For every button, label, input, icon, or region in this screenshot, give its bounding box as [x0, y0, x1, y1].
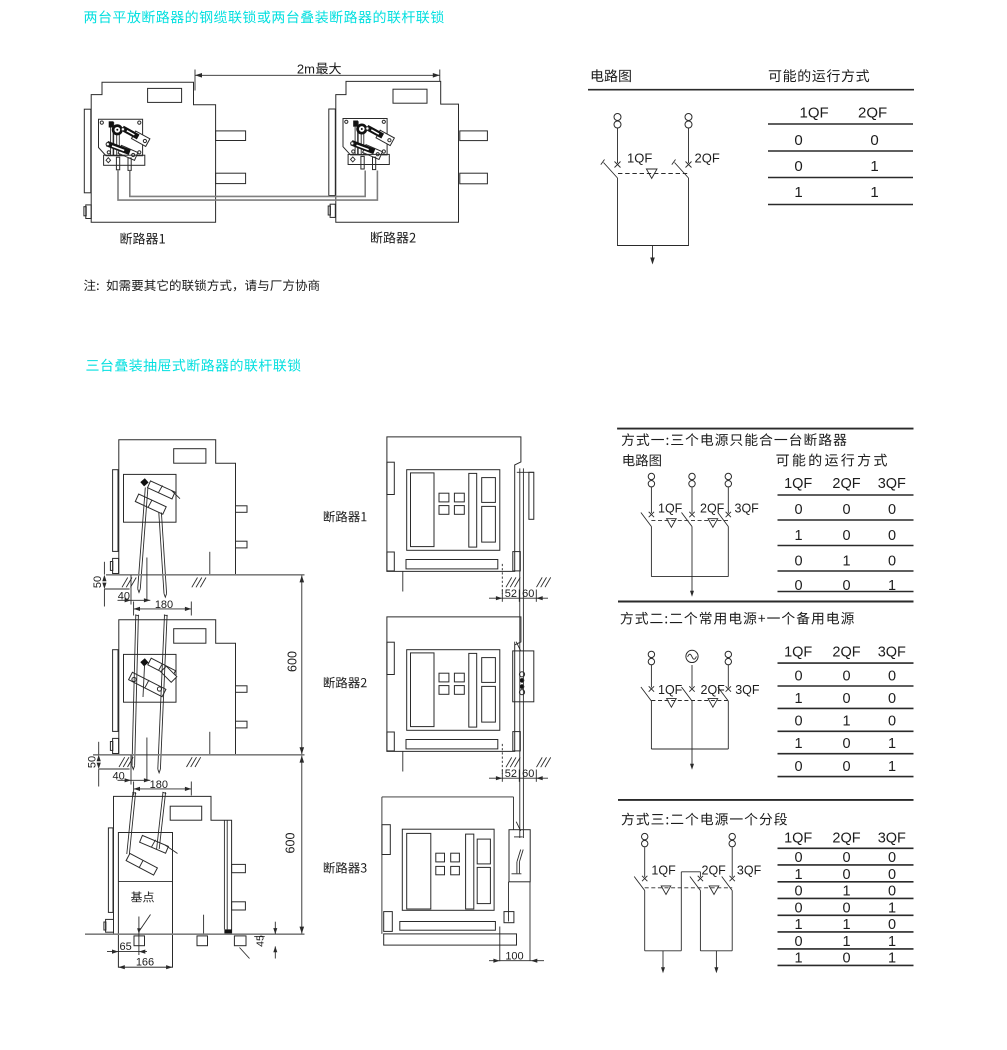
svg-text:0: 0: [794, 554, 802, 570]
svg-text:0: 0: [870, 132, 878, 149]
svg-text:3QF: 3QF: [737, 864, 762, 878]
svg-text:0: 0: [794, 759, 802, 775]
svg-text:1: 1: [842, 884, 850, 900]
svg-text:1: 1: [794, 736, 802, 752]
svg-text:3QF: 3QF: [878, 476, 906, 492]
svg-text:166: 166: [136, 957, 154, 969]
svg-text:1: 1: [842, 554, 850, 570]
svg-text:0: 0: [842, 951, 850, 967]
svg-text:1: 1: [870, 184, 878, 201]
svg-text:0: 0: [794, 714, 802, 730]
svg-text:1QF: 1QF: [627, 151, 652, 166]
svg-text:2QF: 2QF: [832, 831, 860, 847]
svg-text:1: 1: [842, 917, 850, 933]
svg-text:2QF: 2QF: [701, 683, 726, 697]
svg-text:60: 60: [522, 588, 534, 600]
svg-text:2QF: 2QF: [700, 502, 725, 516]
svg-text:65: 65: [120, 941, 132, 953]
svg-text:50: 50: [92, 576, 104, 588]
svg-text:100: 100: [505, 950, 523, 962]
svg-text:0: 0: [888, 528, 896, 544]
svg-text:180: 180: [150, 779, 168, 791]
svg-text:0: 0: [842, 901, 850, 917]
svg-text:1: 1: [794, 917, 802, 933]
svg-text:1: 1: [794, 528, 802, 544]
svg-text:2QF: 2QF: [832, 645, 860, 661]
svg-text:1: 1: [794, 184, 802, 201]
svg-text:0: 0: [842, 578, 850, 594]
svg-text:1: 1: [888, 736, 896, 752]
svg-text:1QF: 1QF: [784, 831, 812, 847]
svg-text:0: 0: [794, 934, 802, 950]
svg-text:1: 1: [794, 867, 802, 883]
svg-text:1: 1: [794, 691, 802, 707]
svg-text:2m: 2m: [297, 61, 315, 76]
svg-text:0: 0: [842, 759, 850, 775]
svg-text:0: 0: [794, 578, 802, 594]
svg-text:0: 0: [888, 668, 896, 684]
svg-text:1: 1: [794, 951, 802, 967]
svg-text:52: 52: [505, 768, 517, 780]
svg-text:0: 0: [794, 850, 802, 866]
svg-text:1QF: 1QF: [800, 105, 829, 122]
svg-text:0: 0: [842, 867, 850, 883]
svg-text:0: 0: [888, 884, 896, 900]
svg-text:180: 180: [155, 599, 173, 611]
svg-text:1: 1: [842, 934, 850, 950]
svg-text:1: 1: [888, 951, 896, 967]
svg-text:45: 45: [255, 935, 267, 947]
svg-text:1: 1: [870, 158, 878, 175]
svg-text:1: 1: [888, 578, 896, 594]
svg-text:2QF: 2QF: [702, 864, 727, 878]
svg-text:1: 1: [888, 901, 896, 917]
svg-text:0: 0: [794, 668, 802, 684]
svg-text:1QF: 1QF: [651, 864, 676, 878]
svg-text:2QF: 2QF: [832, 476, 860, 492]
svg-text:0: 0: [888, 917, 896, 933]
svg-text:2QF: 2QF: [695, 151, 720, 166]
svg-text:0: 0: [794, 901, 802, 917]
svg-text:0: 0: [794, 158, 802, 175]
svg-text:3QF: 3QF: [735, 683, 760, 697]
svg-text:600: 600: [283, 833, 297, 854]
svg-text:0: 0: [842, 736, 850, 752]
svg-text:1QF: 1QF: [784, 476, 812, 492]
svg-text:50: 50: [86, 756, 98, 768]
svg-text:3QF: 3QF: [735, 502, 760, 516]
svg-text:0: 0: [888, 714, 896, 730]
svg-text:0: 0: [842, 502, 850, 518]
svg-text:0: 0: [842, 668, 850, 684]
svg-text:52: 52: [505, 588, 517, 600]
svg-text:0: 0: [794, 132, 802, 149]
svg-text:0: 0: [794, 884, 802, 900]
svg-text:0: 0: [842, 850, 850, 866]
svg-text:0: 0: [888, 867, 896, 883]
svg-text:0: 0: [842, 528, 850, 544]
svg-text:1: 1: [888, 759, 896, 775]
svg-text:1: 1: [888, 934, 896, 950]
svg-text:1QF: 1QF: [658, 502, 683, 516]
svg-text:40: 40: [118, 590, 130, 602]
svg-text:0: 0: [888, 554, 896, 570]
svg-text:1QF: 1QF: [658, 683, 683, 697]
svg-text:0: 0: [842, 691, 850, 707]
svg-text:0: 0: [888, 850, 896, 866]
svg-text:0: 0: [888, 502, 896, 518]
svg-text:2QF: 2QF: [858, 105, 887, 122]
svg-text:40: 40: [113, 770, 125, 782]
svg-text:1QF: 1QF: [784, 645, 812, 661]
svg-text:1: 1: [842, 714, 850, 730]
svg-text:3QF: 3QF: [878, 645, 906, 661]
svg-text:0: 0: [794, 502, 802, 518]
svg-text:3QF: 3QF: [878, 831, 906, 847]
svg-text:0: 0: [888, 691, 896, 707]
svg-text:600: 600: [285, 651, 299, 672]
svg-text:60: 60: [522, 768, 534, 780]
